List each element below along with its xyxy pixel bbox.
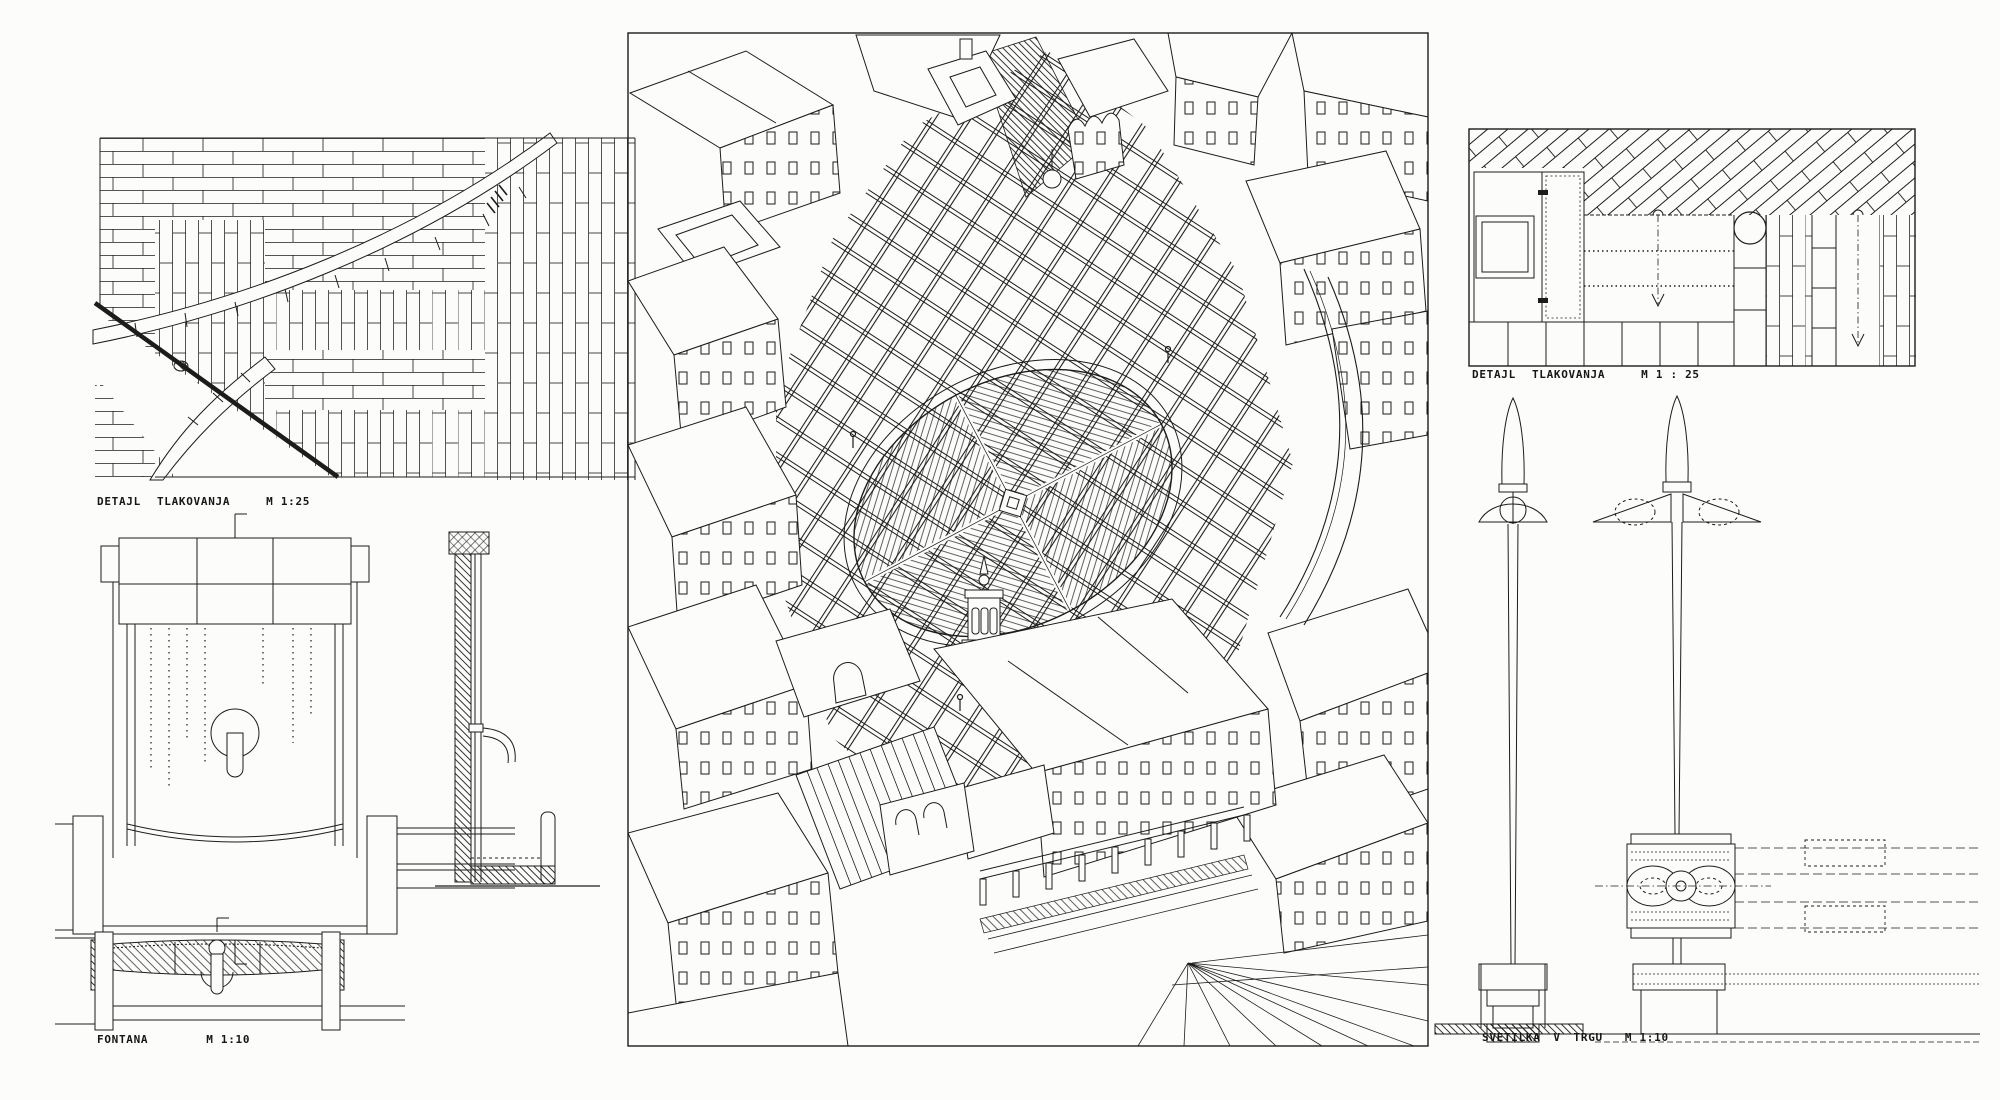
paving-right-middle-courses	[1584, 210, 1734, 306]
fountain-drawing	[55, 514, 600, 1030]
fountain-elevation	[55, 514, 515, 964]
fountain-spout-plan	[211, 954, 223, 994]
fountain-spout-front	[227, 733, 243, 777]
caption-text: DETAJL	[1472, 368, 1516, 381]
caption-text: FONTANA	[97, 1033, 148, 1046]
paving-left-junction-blob	[174, 361, 188, 371]
radiating-pavement	[1138, 935, 1428, 1046]
caption-scale: M 1:10	[1625, 1031, 1669, 1044]
paving-right-bottom-row	[1469, 322, 1734, 366]
fountain-section	[435, 532, 600, 886]
paving-right-caption: DETAJL TLAKOVANJA M 1 : 25	[1472, 368, 1700, 381]
lamp-plan-detail	[1595, 834, 1771, 938]
paving-right-drain-circle	[1734, 212, 1766, 244]
fountain-plan	[55, 918, 405, 1030]
caption-scale: M 1 : 25	[1641, 368, 1700, 381]
lamp-front-view	[1583, 396, 1980, 1042]
lamp-caption: SVETILKA V TRGU M 1:10	[1482, 1031, 1669, 1044]
lamp-side-view	[1435, 398, 1583, 1042]
caption-text: TLAKOVANJA	[1532, 368, 1605, 381]
caption-text: DETAJL	[97, 495, 141, 508]
paving-detail-left-drawing	[93, 133, 635, 480]
paving-left-caption: DETAJL TLAKOVANJA M 1:25	[97, 495, 310, 508]
lamp-drawing	[1435, 396, 1980, 1042]
caption-scale: M 1:10	[206, 1033, 250, 1046]
paving-detail-right-drawing	[1469, 129, 1916, 366]
sheet-drawing-canvas	[0, 0, 2000, 1100]
caption-scale: M 1:25	[266, 495, 310, 508]
drawing-sheet: DETAJL TLAKOVANJA M 1:25 FONTANA M 1:10 …	[0, 0, 2000, 1100]
fountain-spout-section	[483, 728, 515, 763]
caption-text: TLAKOVANJA	[157, 495, 230, 508]
axonometric-town-square	[628, 33, 1428, 1046]
paving-right-strips	[1734, 210, 1916, 366]
paving-right-left-block	[1474, 172, 1584, 322]
fountain-caption: FONTANA M 1:10	[97, 1033, 250, 1046]
caption-text: SVETILKA V TRGU	[1482, 1031, 1603, 1044]
plan-extension-lines	[1735, 848, 1980, 928]
